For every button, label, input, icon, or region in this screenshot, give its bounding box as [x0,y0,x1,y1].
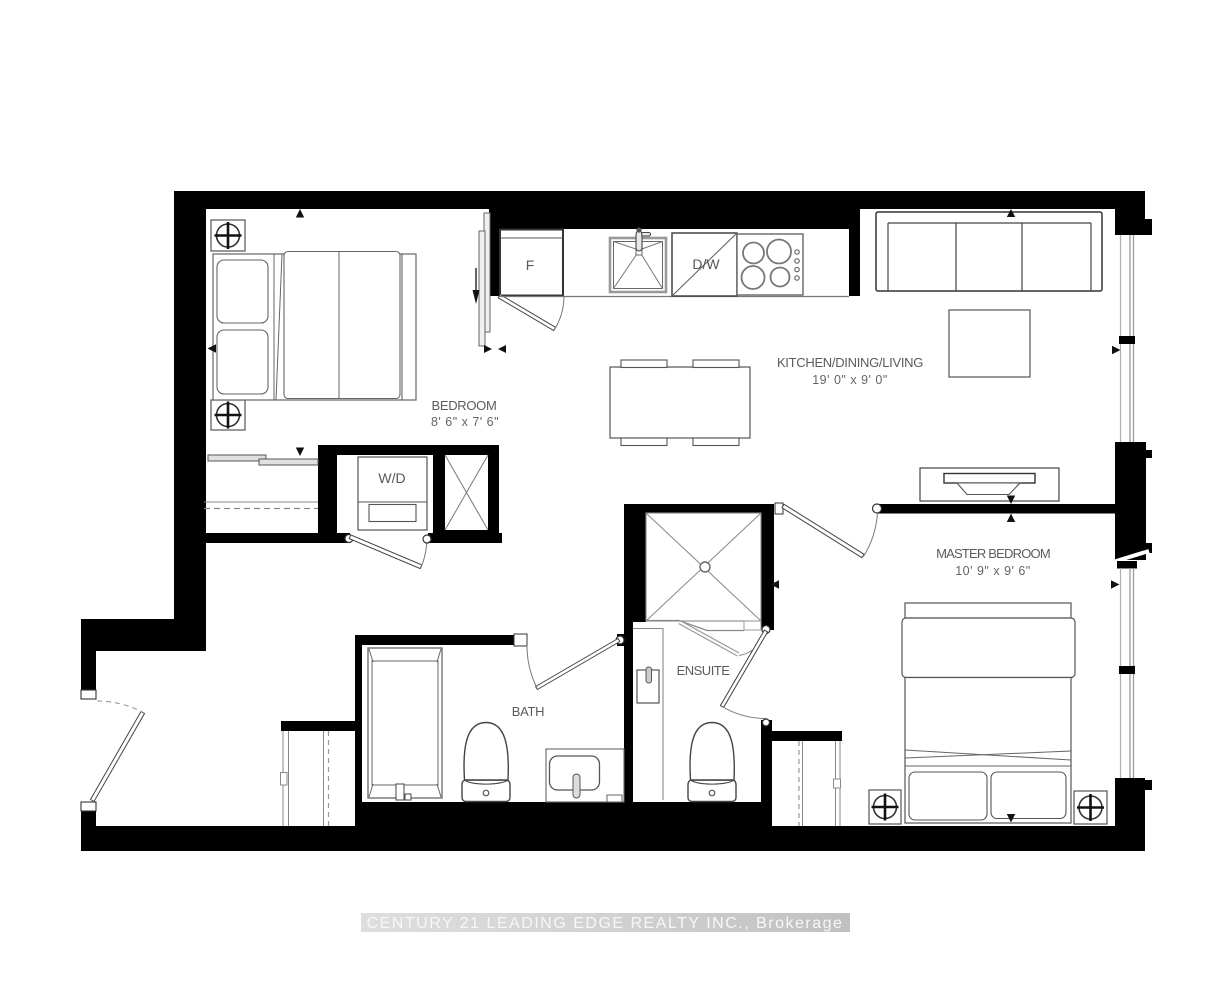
svg-text:19' 0" x 9' 0": 19' 0" x 9' 0" [812,373,888,387]
svg-text:BEDROOM: BEDROOM [431,398,496,413]
svg-text:10' 9" x 9' 6": 10' 9" x 9' 6" [955,564,1031,578]
svg-text:D/W: D/W [692,256,720,272]
svg-text:F: F [526,257,535,273]
svg-text:MASTER BEDROOM: MASTER BEDROOM [936,546,1050,561]
svg-text:CENTURY 21 LEADING EDGE REALTY: CENTURY 21 LEADING EDGE REALTY INC., Bro… [367,915,844,932]
svg-text:KITCHEN/DINING/LIVING: KITCHEN/DINING/LIVING [777,355,923,370]
svg-text:W/D: W/D [378,470,405,486]
svg-text:ENSUITE: ENSUITE [677,663,731,678]
svg-text:8' 6" x 7' 6": 8' 6" x 7' 6" [431,415,499,429]
svg-text:BATH: BATH [512,704,545,719]
